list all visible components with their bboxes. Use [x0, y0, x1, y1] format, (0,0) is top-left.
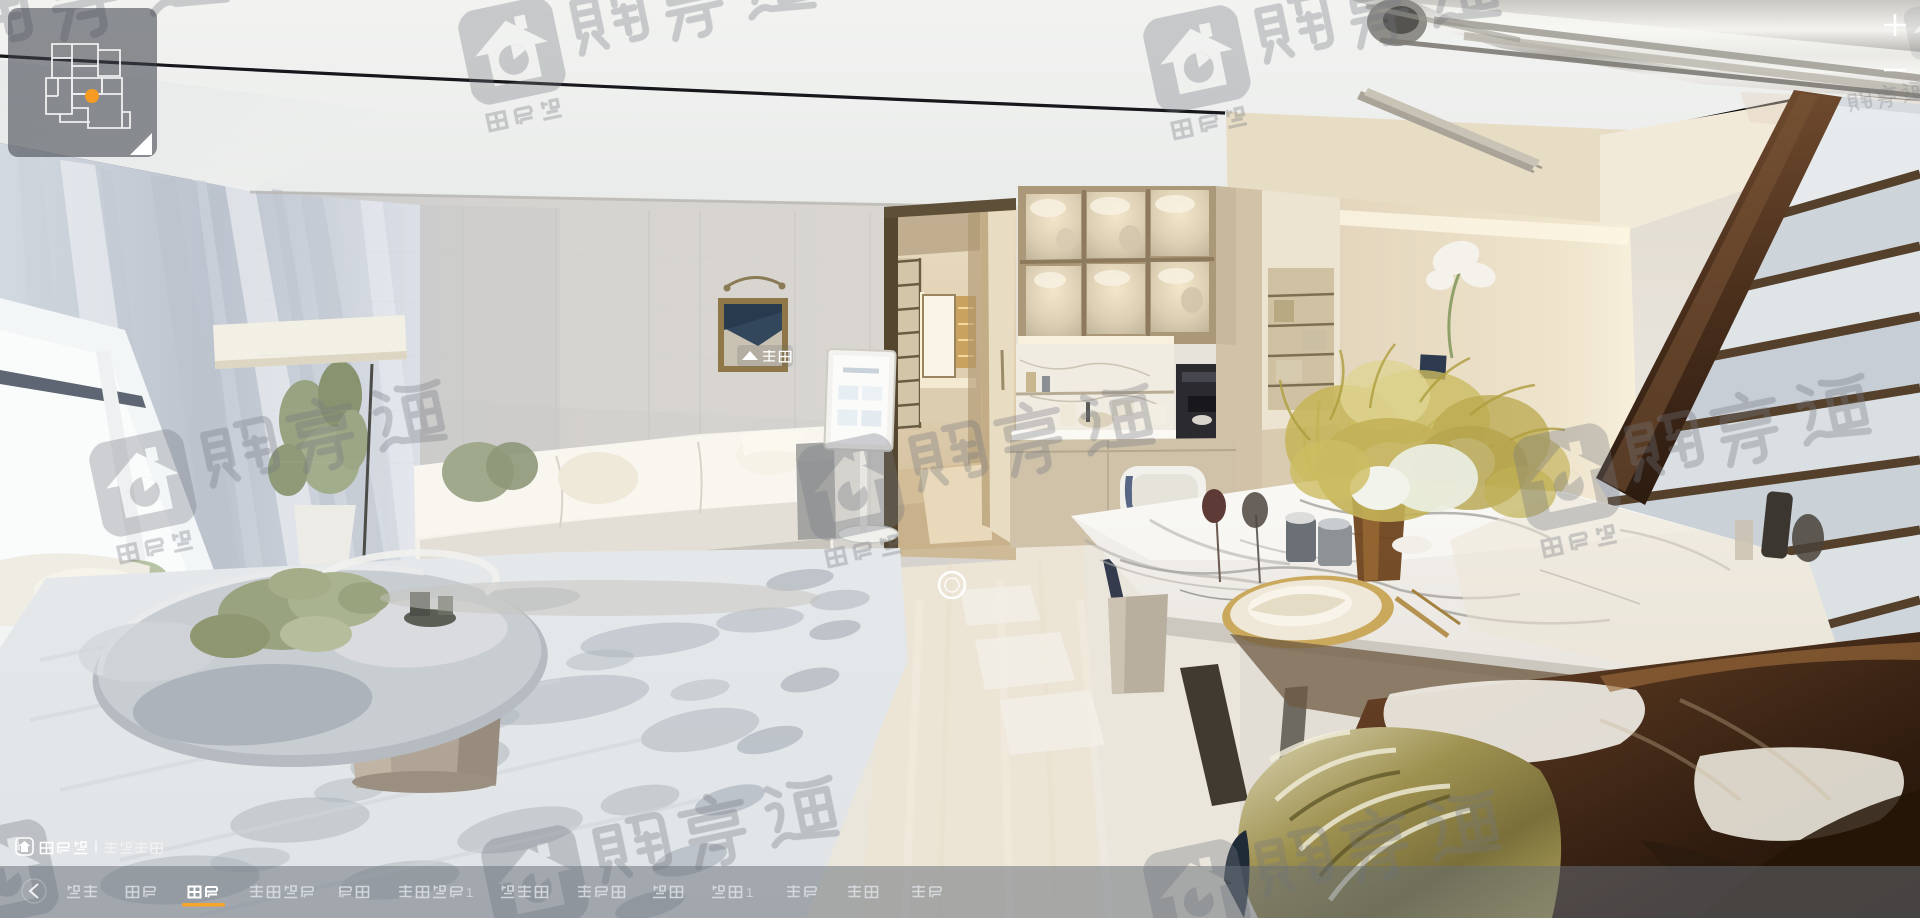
svg-text:1: 1 [466, 885, 473, 900]
svg-text:1: 1 [746, 885, 753, 900]
